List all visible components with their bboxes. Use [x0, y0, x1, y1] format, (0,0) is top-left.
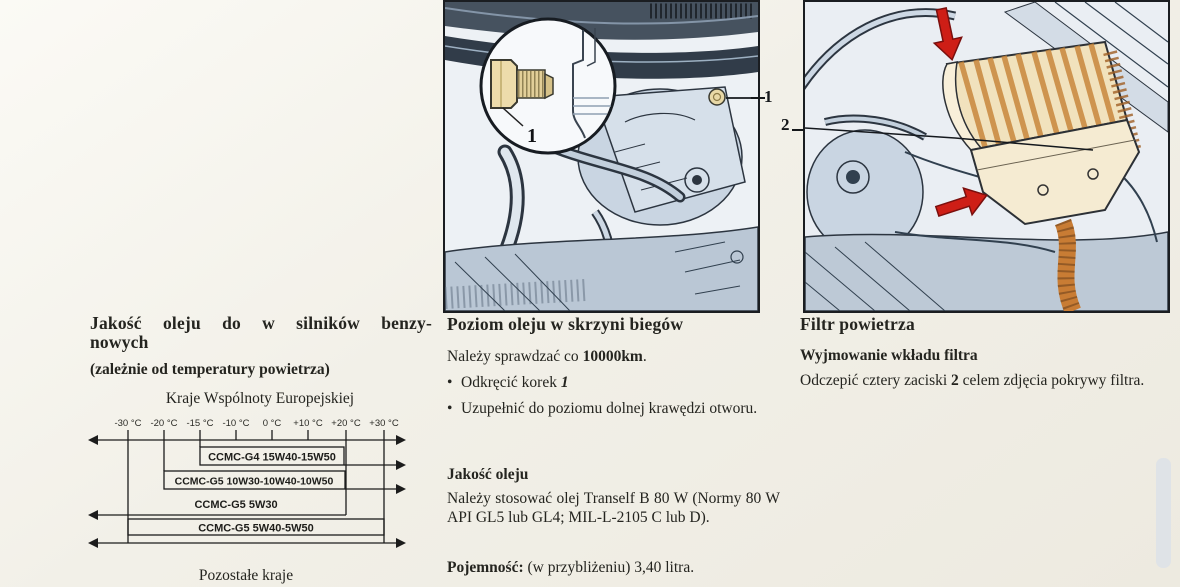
intake-hose	[1063, 222, 1073, 311]
bullet-item-2: •Uzupełnić do poziomu dolnej krawędzi ot…	[447, 399, 780, 418]
oil-range-label: CCMC-G5 5W30	[194, 499, 277, 511]
page-edge-tab	[1156, 458, 1171, 568]
oil-range-label: CCMC-G4 15W40-15W50	[208, 452, 336, 464]
air-filter-body: Odczepić cztery zaciski 2 celem zdjęcia …	[800, 371, 1146, 390]
capacity-label: Pojemność:	[447, 559, 524, 576]
figure-air-filter-illustration	[803, 0, 1170, 313]
check-interval-text: Należy sprawdzać co 10000km.	[447, 347, 780, 366]
bullet-icon: •	[447, 373, 461, 392]
oil-viscosity-chart-svg: -30 °C -20 °C -15 °C -10 °C 0 °C +10 °C …	[88, 416, 422, 552]
capacity-value: (w przybliżeniu) 3,40 litra.	[524, 559, 694, 576]
bullet2-text: Uzupełnić do poziomu dolnej krawędzi otw…	[461, 400, 757, 417]
gearbox-illustration-art: 1	[445, 2, 758, 311]
callout-2-label: 2	[781, 115, 790, 135]
plug-inset-circle: 1	[481, 19, 615, 153]
bullet1-callout-ref: 1	[561, 374, 569, 391]
oil-range-label: CCMC-G5 10W30-10W40-10W50	[175, 476, 334, 488]
chart-title: Kraje Wspólnoty Europejskiej	[90, 389, 430, 408]
bullet1-text: Odkręcić korek	[461, 374, 561, 391]
figure-gearbox-oil-level-illustration: 1	[443, 0, 760, 313]
capacity-line: Pojemność: (w przybliżeniu) 3,40 litra.	[447, 558, 780, 577]
gearbox-oil-heading: Poziom oleju w skrzyni biegów	[447, 315, 780, 334]
air-filter-body-pre: Odczepić cztery zaciski	[800, 372, 951, 389]
left-subheading: (zależnie od temperatury powietrza)	[90, 361, 432, 379]
drain-plug-head	[491, 60, 517, 108]
temp-tick-label: -10 °C	[222, 418, 249, 429]
bullet-icon: •	[447, 399, 461, 418]
callout-2-line	[792, 129, 804, 131]
interval-value: 10000km	[583, 348, 643, 365]
temp-tick-label: -15 °C	[186, 418, 213, 429]
interval-post: .	[643, 348, 647, 365]
oil-viscosity-chart: -30 °C -20 °C -15 °C -10 °C 0 °C +10 °C …	[88, 416, 422, 552]
left-heading-line1: Jakość oleju do w silników benzy-	[90, 314, 432, 334]
callout-1-line	[751, 97, 765, 99]
temp-tick-label: +20 °C	[331, 418, 361, 429]
bullet-item-1: •Odkręcić korek 1	[447, 373, 780, 392]
temp-tick-label: -20 °C	[150, 418, 177, 429]
temp-tick-label: -30 °C	[114, 418, 141, 429]
interval-pre: Należy sprawdzać co	[447, 348, 583, 365]
chart-footnote: Pozostałe kraje	[90, 566, 402, 585]
manual-page: 1 1	[0, 0, 1180, 587]
air-filter-heading: Filtr powietrza	[800, 315, 1146, 334]
oil-quality-heading: Jakość oleju	[447, 466, 780, 484]
temp-tick-label: +30 °C	[369, 418, 399, 429]
inset-callout-1: 1	[527, 125, 537, 147]
air-filter-body-post: celem zdjęcia pokrywy filtra.	[959, 372, 1145, 389]
oil-quality-body: Należy stosować olej Tranself B 80 W (No…	[447, 489, 780, 527]
left-heading-line2: nowych	[90, 333, 432, 352]
air-filter-subheading: Wyjmowanie wkładu filtra	[800, 347, 1146, 365]
temp-tick-label: +10 °C	[293, 418, 323, 429]
air-filter-illustration-art	[805, 2, 1168, 311]
air-filter-callout-ref: 2	[951, 372, 959, 389]
oil-range-label: CCMC-G5 5W40-5W50	[198, 523, 314, 535]
temp-tick-label: 0 °C	[263, 418, 282, 429]
callout-1-label: 1	[764, 87, 773, 107]
